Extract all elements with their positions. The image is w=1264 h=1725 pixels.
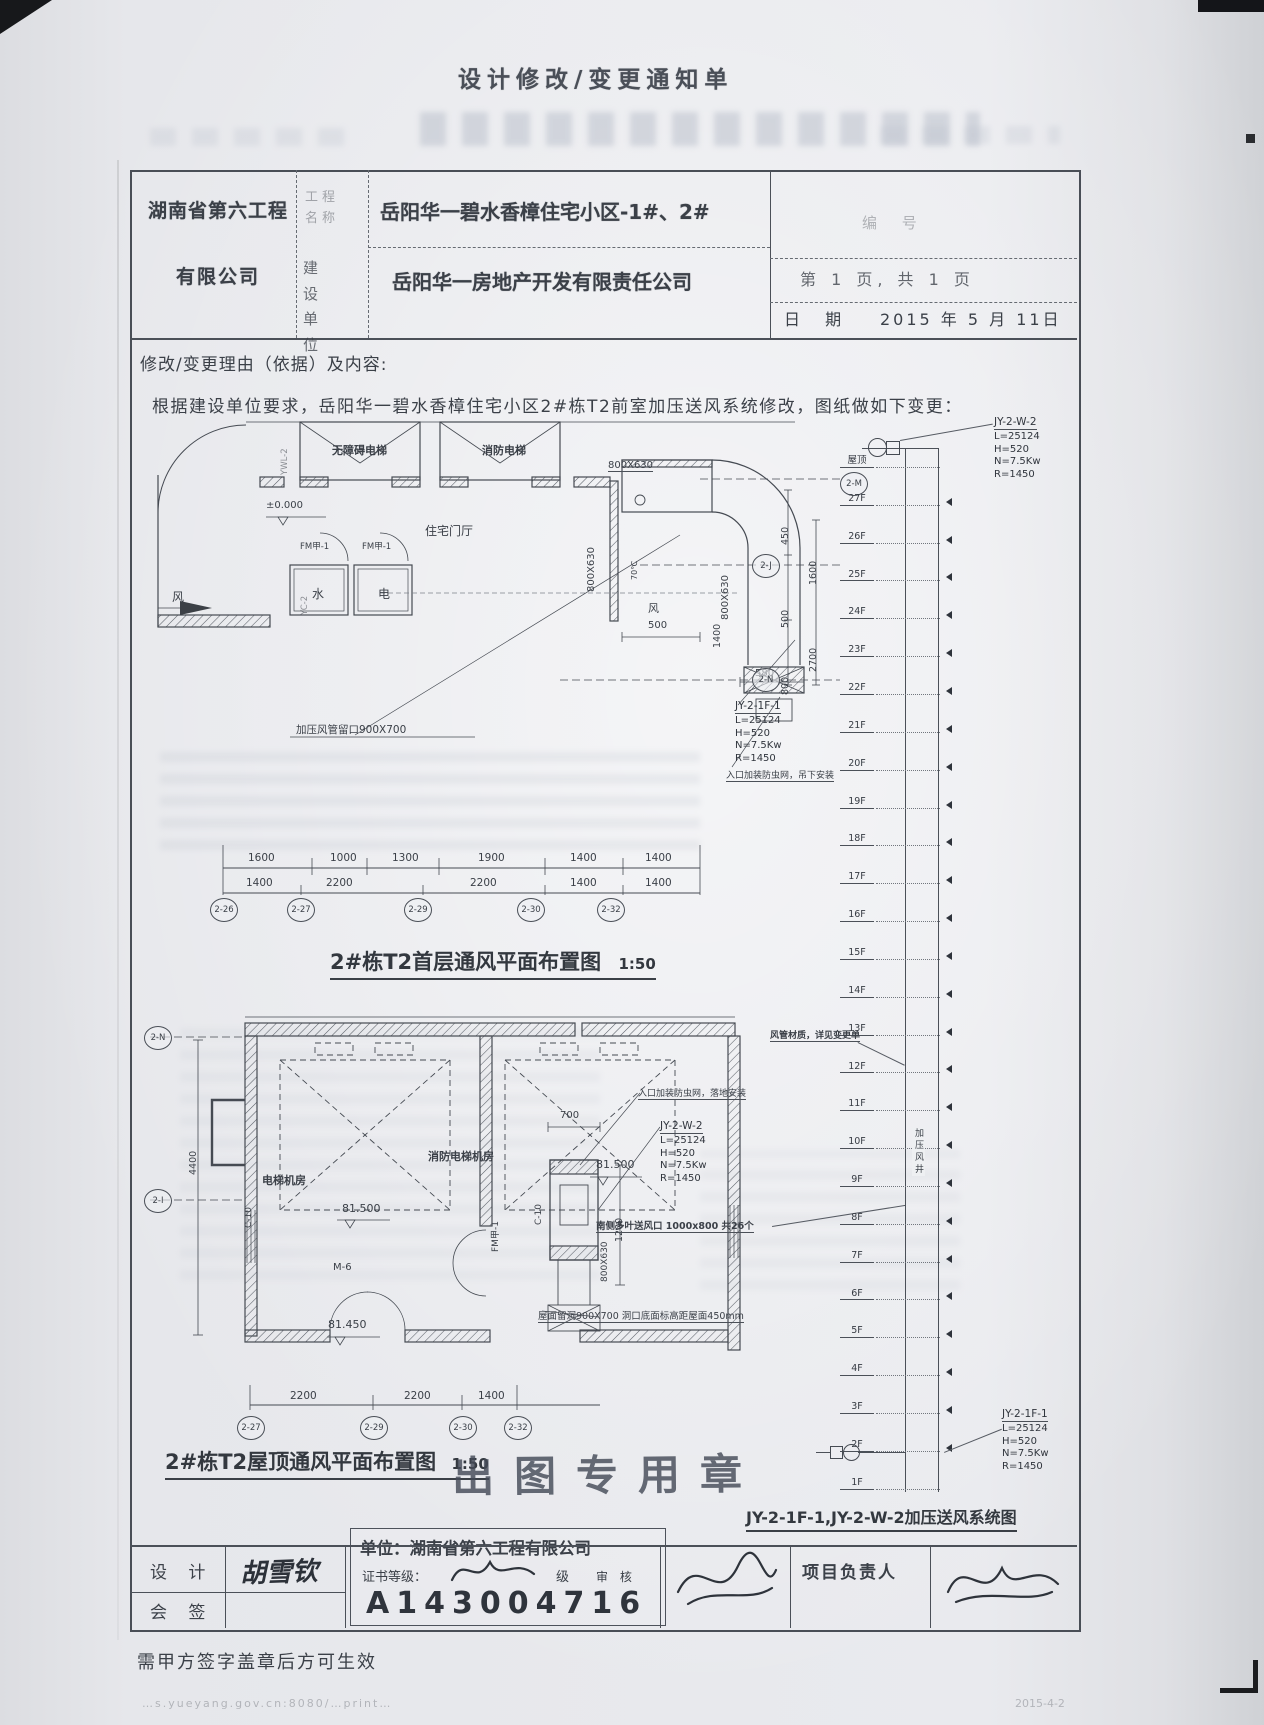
- floor-label: 8F: [840, 1213, 874, 1225]
- signoff-table-line: [130, 1592, 345, 1593]
- stamp-cert-label: 证书等级：: [362, 1566, 427, 1585]
- floor-label: 16F: [840, 910, 874, 922]
- wind-label: 风: [172, 588, 184, 605]
- grille-icon: [942, 1330, 952, 1338]
- window-label: C-10: [534, 1204, 544, 1225]
- grid-bubble-label: 2-26: [214, 905, 233, 915]
- riser-floor-row: 15F: [840, 948, 952, 960]
- grid-bubble: 2-29: [360, 1416, 388, 1440]
- design-label: 设 计: [150, 1558, 213, 1583]
- corner-mark-bottom-right-v: [1253, 1660, 1258, 1693]
- fan-spec-l: L=25124: [735, 715, 781, 726]
- riser-floor-row: 19F: [840, 797, 952, 809]
- grid-bubble: 2-30: [449, 1416, 477, 1440]
- dim-label: 2700: [808, 648, 819, 672]
- floor-label: 4F: [840, 1364, 874, 1376]
- grille-icon: [942, 838, 952, 846]
- riser-floor-row: 8F: [840, 1213, 952, 1225]
- riser-floor-row: 1F: [840, 1478, 952, 1490]
- signoff-table-line: [660, 1545, 661, 1628]
- builder-label: 建设单位: [303, 256, 339, 358]
- fan-spec-h: H=520: [1002, 1436, 1037, 1447]
- scanned-change-notice-page: 设计修改/变更通知单 湖南省第六工程 有限公司 工程名称 建设单位 岳阳华一碧水…: [0, 0, 1264, 1725]
- riser-floor-row: 9F: [840, 1175, 952, 1187]
- project-name: 岳阳华一碧水香樟住宅小区-1#、2#: [380, 196, 710, 225]
- plan2-caption-text: 2#栋T2屋顶通风平面布置图: [165, 1450, 436, 1474]
- project-name-label: 工程名称: [305, 188, 339, 230]
- stamp-cert-suffix: 级: [556, 1566, 569, 1585]
- design-signature: 胡雪钦: [239, 1551, 318, 1591]
- grid-bubble: 2-I: [144, 1189, 172, 1213]
- material-note: 风管材质，详见变更单: [770, 1028, 860, 1042]
- fan-spec-l: L=25124: [1002, 1423, 1048, 1434]
- riser-caption: JY-2-1F-1,JY-2-W-2加压送风系统图: [746, 1504, 1017, 1532]
- fan-spec-l: L=25124: [994, 431, 1040, 442]
- fan-spec-r: R=1450: [735, 753, 776, 764]
- grid-bubble: 2-J: [752, 554, 780, 578]
- electric-room-label: 电: [378, 585, 390, 602]
- grid-bubble: 2-27: [237, 1416, 265, 1440]
- dim-label: 1400: [645, 852, 672, 864]
- grille-icon: [942, 1179, 952, 1187]
- bleedthrough-text: [880, 126, 1060, 144]
- riser-floor-row: 26F: [840, 532, 952, 544]
- lobby-label: 住宅门厅: [425, 522, 473, 539]
- dim-label: 2200: [470, 877, 497, 889]
- floor-label: 9F: [840, 1175, 874, 1187]
- lead-signature: [940, 1548, 1066, 1610]
- floor-label: 26F: [840, 532, 874, 544]
- riser-floor-row: 7F: [840, 1251, 952, 1263]
- floor-label: 24F: [840, 607, 874, 619]
- footer-date: 2015-4-2: [1015, 1697, 1065, 1710]
- riser-floor-row: 25F: [840, 570, 952, 582]
- review-label: 审 核: [596, 1568, 636, 1585]
- dim-label: 1600: [248, 852, 275, 864]
- riser-floor-row: 23F: [840, 645, 952, 657]
- check-signature: [446, 1548, 542, 1594]
- signoff-table-line: [130, 1545, 1077, 1547]
- level-mark-label: ±0.000: [266, 500, 303, 511]
- grille-icon: [942, 763, 952, 771]
- grille-icon: [942, 801, 952, 809]
- dim-label: 500: [780, 610, 791, 628]
- grid-bubble-label: 2-27: [291, 905, 310, 915]
- fan-spec-block: JY-2-W-2 L=25124 H=520 N=7.5Kw R=1450: [660, 1120, 707, 1185]
- grid-bubble: 2-29: [404, 898, 432, 922]
- riser-floor-row: 6F: [840, 1289, 952, 1301]
- fan-spec-block: JY-2-1F-1 L=25124 H=520 N=7.5Kw R=1450: [735, 700, 782, 765]
- fan-spec-r: R=1450: [994, 469, 1035, 480]
- plan1-caption: 2#栋T2首层通风平面布置图 1:50: [330, 946, 656, 980]
- grille-icon: [942, 1065, 952, 1073]
- floor-label: 19F: [840, 797, 874, 809]
- riser-bottom-fan-spec: JY-2-1F-1 L=25124 H=520 N=7.5Kw R=1450: [1002, 1408, 1049, 1473]
- louver-callout: 南侧多叶送风口 1000x800 共26个: [596, 1218, 754, 1233]
- fire-machine-room-label: 消防电梯机房: [428, 1148, 494, 1164]
- duct-size-label: 800X630: [586, 547, 597, 592]
- grid-bubble-label: 2-N: [759, 675, 774, 685]
- signoff-table-line: [345, 1545, 346, 1628]
- riser-floor-row: 10F: [840, 1137, 952, 1149]
- riser-floor-row: 3F: [840, 1402, 952, 1414]
- header-divider: [770, 170, 771, 338]
- grille-icon: [942, 536, 952, 544]
- footer-url: …s.yueyang.gov.cn:8080/…print…: [142, 1697, 392, 1710]
- fan-spec-h: H=520: [994, 444, 1029, 455]
- fan-symbol: [868, 438, 887, 457]
- dim-label: 2200: [326, 877, 353, 889]
- dim-label: 1400: [570, 877, 597, 889]
- grid-bubble: 2-N: [752, 668, 780, 692]
- wind-label: 风: [648, 600, 659, 616]
- floor-label: 6F: [840, 1289, 874, 1301]
- plan1-drawing: [140, 415, 845, 895]
- riser-code-label: YC-2: [300, 596, 310, 615]
- corner-mark-top-left: [0, 0, 52, 34]
- fan-symbol: [843, 1444, 860, 1461]
- signoff-table-line: [930, 1545, 931, 1628]
- signoff-table-line: [790, 1545, 791, 1628]
- floor-label: 23F: [840, 645, 874, 657]
- fan-id: JY-2-1F-1: [1002, 1408, 1048, 1422]
- temp-label: 70℃: [630, 561, 639, 580]
- header-divider: [368, 247, 770, 248]
- edge-mark-right: [1246, 134, 1255, 143]
- paper-crease: [117, 160, 119, 1640]
- fan-spec-r: R=1450: [660, 1173, 701, 1184]
- grille-icon: [942, 1028, 952, 1036]
- fan-id: JY-2-W-2: [994, 416, 1037, 430]
- riser-floor-row: 5F: [840, 1326, 952, 1338]
- duct-size-label: 800X630: [720, 575, 731, 620]
- grid-bubble: 2-30: [517, 898, 545, 922]
- shaft-label: 加压风井: [912, 1128, 925, 1176]
- validity-note: 需甲方签字盖章后方可生效: [137, 1648, 377, 1674]
- level-label: 81.500: [596, 1158, 635, 1171]
- grille-icon: [942, 990, 952, 998]
- grid-bubble: 2-32: [597, 898, 625, 922]
- fan-id: JY-2-1F-1: [735, 700, 781, 714]
- fan-spec-h: H=520: [735, 728, 770, 739]
- level-label: 81.500: [342, 1202, 381, 1215]
- riser-floor-row: 12F: [840, 1062, 952, 1074]
- floor-label: 3F: [840, 1402, 874, 1414]
- dim-label: 2200: [290, 1390, 317, 1402]
- grille-icon: [942, 1103, 952, 1111]
- elevator-accessible-label: 无障碍电梯: [332, 442, 387, 458]
- reason-text: 根据建设单位要求，岳阳华一碧水香樟住宅小区2#栋T2前室加压送风系统修改，图纸做…: [152, 392, 963, 417]
- duct-size-label: 800X630: [600, 1241, 610, 1282]
- review-signature: [668, 1542, 783, 1618]
- signoff-table-line: [225, 1545, 226, 1628]
- grid-bubble-label: 2-N: [151, 1033, 166, 1043]
- grille-icon: [942, 498, 952, 506]
- riser-code-label: YWL-2: [280, 448, 290, 475]
- riser-floor-row: 24F: [840, 607, 952, 619]
- grille-icon: [942, 876, 952, 884]
- page-info: 第 1 页, 共 1 页: [800, 266, 975, 290]
- project-lead-label: 项目负责人: [802, 1558, 897, 1583]
- plan1-caption-text: 2#栋T2首层通风平面布置图: [330, 950, 601, 974]
- floor-label: 22F: [840, 683, 874, 695]
- door-label: FM甲-1: [362, 540, 391, 552]
- riser-floor-row: 14F: [840, 986, 952, 998]
- grid-bubble: 2-26: [210, 898, 238, 922]
- grille-icon: [942, 1368, 952, 1376]
- dim-label: 1400: [712, 624, 723, 648]
- grille-icon: [942, 611, 952, 619]
- riser-floor-row: 27F: [840, 494, 952, 506]
- grille-icon: [942, 687, 952, 695]
- cosign-label: 会 签: [150, 1598, 213, 1623]
- reason-label: 修改/变更理由（依据）及内容:: [140, 350, 387, 375]
- grid-bubble-label: 2-29: [408, 905, 427, 915]
- grid-bubble: 2-32: [504, 1416, 532, 1440]
- dim-label: 1400: [645, 877, 672, 889]
- fan-id: JY-2-W-2: [660, 1120, 703, 1134]
- riser-floor-row: 17F: [840, 872, 952, 884]
- builder-name: 岳阳华一房地产开发有限责任公司: [392, 266, 692, 295]
- floor-label: 27F: [840, 494, 874, 506]
- floor-label: 12F: [840, 1062, 874, 1074]
- floor-label: 5F: [840, 1326, 874, 1338]
- inlet-note: 入口加装防虫网，吊下安装: [726, 768, 834, 782]
- water-room-label: 水: [312, 585, 324, 602]
- riser-floor-row: 屋顶: [840, 456, 952, 468]
- grid-bubble-label: 2-30: [453, 1423, 472, 1433]
- grid-bubble-label: 2-30: [521, 905, 540, 915]
- fan-spec-r: R=1450: [1002, 1461, 1043, 1472]
- fan-spec-h: H=520: [660, 1148, 695, 1159]
- plan1-scale: 1:50: [618, 955, 655, 973]
- roof-hole-callout: 屋面留洞900X700 洞口底面标高距屋面450mm: [538, 1308, 744, 1323]
- header-divider: [296, 170, 297, 338]
- riser-floor-column: 屋顶 27F 26F 25F 24F 23F 22F 21F 20F 19F 1…: [840, 456, 952, 1490]
- fan-symbol-box: [886, 441, 900, 455]
- door-label: M-6: [333, 1262, 352, 1273]
- grille-icon: [942, 1406, 952, 1414]
- stamp-big-text: 出图专用章: [452, 1440, 763, 1504]
- company-name-line2: 有限公司: [176, 262, 260, 289]
- dim-label: 1000: [330, 852, 357, 864]
- grid-bubble: 2-N: [144, 1026, 172, 1050]
- grille-icon: [942, 914, 952, 922]
- fan-spec-l: L=25124: [660, 1135, 706, 1146]
- hole-callout: 加压风管留口900X700: [296, 722, 406, 737]
- dim-label: 4400: [188, 1151, 199, 1175]
- header-divider: [770, 258, 1077, 259]
- date-value: 2015 年 5 月 11日: [880, 306, 1062, 330]
- floor-label: 14F: [840, 986, 874, 998]
- grid-bubble: 2-27: [287, 898, 315, 922]
- dim-label: 1400: [478, 1390, 505, 1402]
- fan-spec-n: N=7.5Kw: [994, 456, 1041, 467]
- floor-label: 10F: [840, 1137, 874, 1149]
- fan-spec-n: N=7.5Kw: [660, 1160, 707, 1171]
- dim-label: 2200: [404, 1390, 431, 1402]
- riser-floor-row: 4F: [840, 1364, 952, 1376]
- corner-mark-top-right: [1198, 0, 1264, 12]
- grid-bubble-label: 2-I: [153, 1196, 164, 1206]
- fan-spec-n: N=7.5Kw: [735, 740, 782, 751]
- inlet-note: 入口加装防虫网，落地安装: [638, 1086, 746, 1100]
- dim-label: 1400: [570, 852, 597, 864]
- grid-bubble-label: 2-27: [241, 1423, 260, 1433]
- grille-icon: [942, 1141, 952, 1149]
- floor-label: 17F: [840, 872, 874, 884]
- fan-spec-n: N=7.5Kw: [1002, 1448, 1049, 1459]
- dim-label: 1400: [246, 877, 273, 889]
- page-title: 设计修改/变更通知单: [458, 60, 733, 94]
- grille-icon: [942, 952, 952, 960]
- bleedthrough-text: [150, 128, 350, 146]
- header-divider: [368, 170, 369, 338]
- grille-icon: [942, 573, 952, 581]
- date-label: 日 期: [784, 306, 851, 330]
- grille-icon: [942, 1217, 952, 1225]
- serial-label: 编 号: [862, 212, 927, 233]
- grid-bubble-label: 2-32: [601, 905, 620, 915]
- riser-floor-row: 21F: [840, 721, 952, 733]
- dim-label: 500: [648, 620, 667, 631]
- elevator-fire-label: 消防电梯: [482, 442, 526, 458]
- dim-label: 450: [780, 527, 791, 545]
- grid-bubble-label: 2-32: [508, 1423, 527, 1433]
- company-name-line1: 湖南省第六工程: [148, 196, 288, 223]
- dim-label: 700: [560, 1110, 579, 1121]
- door-label: FM甲-1: [300, 540, 329, 552]
- grid-bubble-label: 2-29: [364, 1423, 383, 1433]
- duct-size-label: 800X630: [608, 460, 653, 472]
- floor-label: 1F: [840, 1478, 874, 1490]
- riser-top-fan-spec: JY-2-W-2 L=25124 H=520 N=7.5Kw R=1450: [994, 416, 1041, 481]
- grille-icon: [942, 1255, 952, 1263]
- floor-label: 18F: [840, 834, 874, 846]
- grid-bubble-label: 2-J: [760, 561, 771, 571]
- riser-bottom-stub: [816, 1452, 830, 1453]
- machine-room-label: 电梯机房: [262, 1172, 306, 1188]
- header-divider: [770, 302, 1077, 303]
- dim-label: 1300: [392, 852, 419, 864]
- riser-bottom-duct: [858, 1452, 905, 1453]
- floor-label: 21F: [840, 721, 874, 733]
- dim-label: 800: [780, 677, 791, 695]
- fan-symbol-box: [830, 1446, 843, 1459]
- dim-label: 1900: [478, 852, 505, 864]
- riser-floor-row: 20F: [840, 759, 952, 771]
- grille-icon: [942, 1292, 952, 1300]
- floor-label: 15F: [840, 948, 874, 960]
- header-bottom-line: [130, 338, 1077, 340]
- door-label: FM甲-1: [488, 1221, 501, 1252]
- riser-floor-row: 11F: [840, 1099, 952, 1111]
- window-label: C-10: [244, 1207, 254, 1228]
- dim-label: 1600: [808, 561, 819, 585]
- level-label: 81.450: [328, 1318, 367, 1331]
- plan2-caption: 2#栋T2屋顶通风平面布置图 1:50: [165, 1446, 489, 1480]
- grille-icon: [942, 725, 952, 733]
- floor-label: 屋顶: [840, 456, 874, 468]
- riser-floor-row: 18F: [840, 834, 952, 846]
- floor-label: 7F: [840, 1251, 874, 1263]
- floor-label: 25F: [840, 570, 874, 582]
- floor-label: 20F: [840, 759, 874, 771]
- floor-label: 11F: [840, 1099, 874, 1111]
- riser-floor-row: 16F: [840, 910, 952, 922]
- riser-floor-row: 22F: [840, 683, 952, 695]
- grille-icon: [942, 649, 952, 657]
